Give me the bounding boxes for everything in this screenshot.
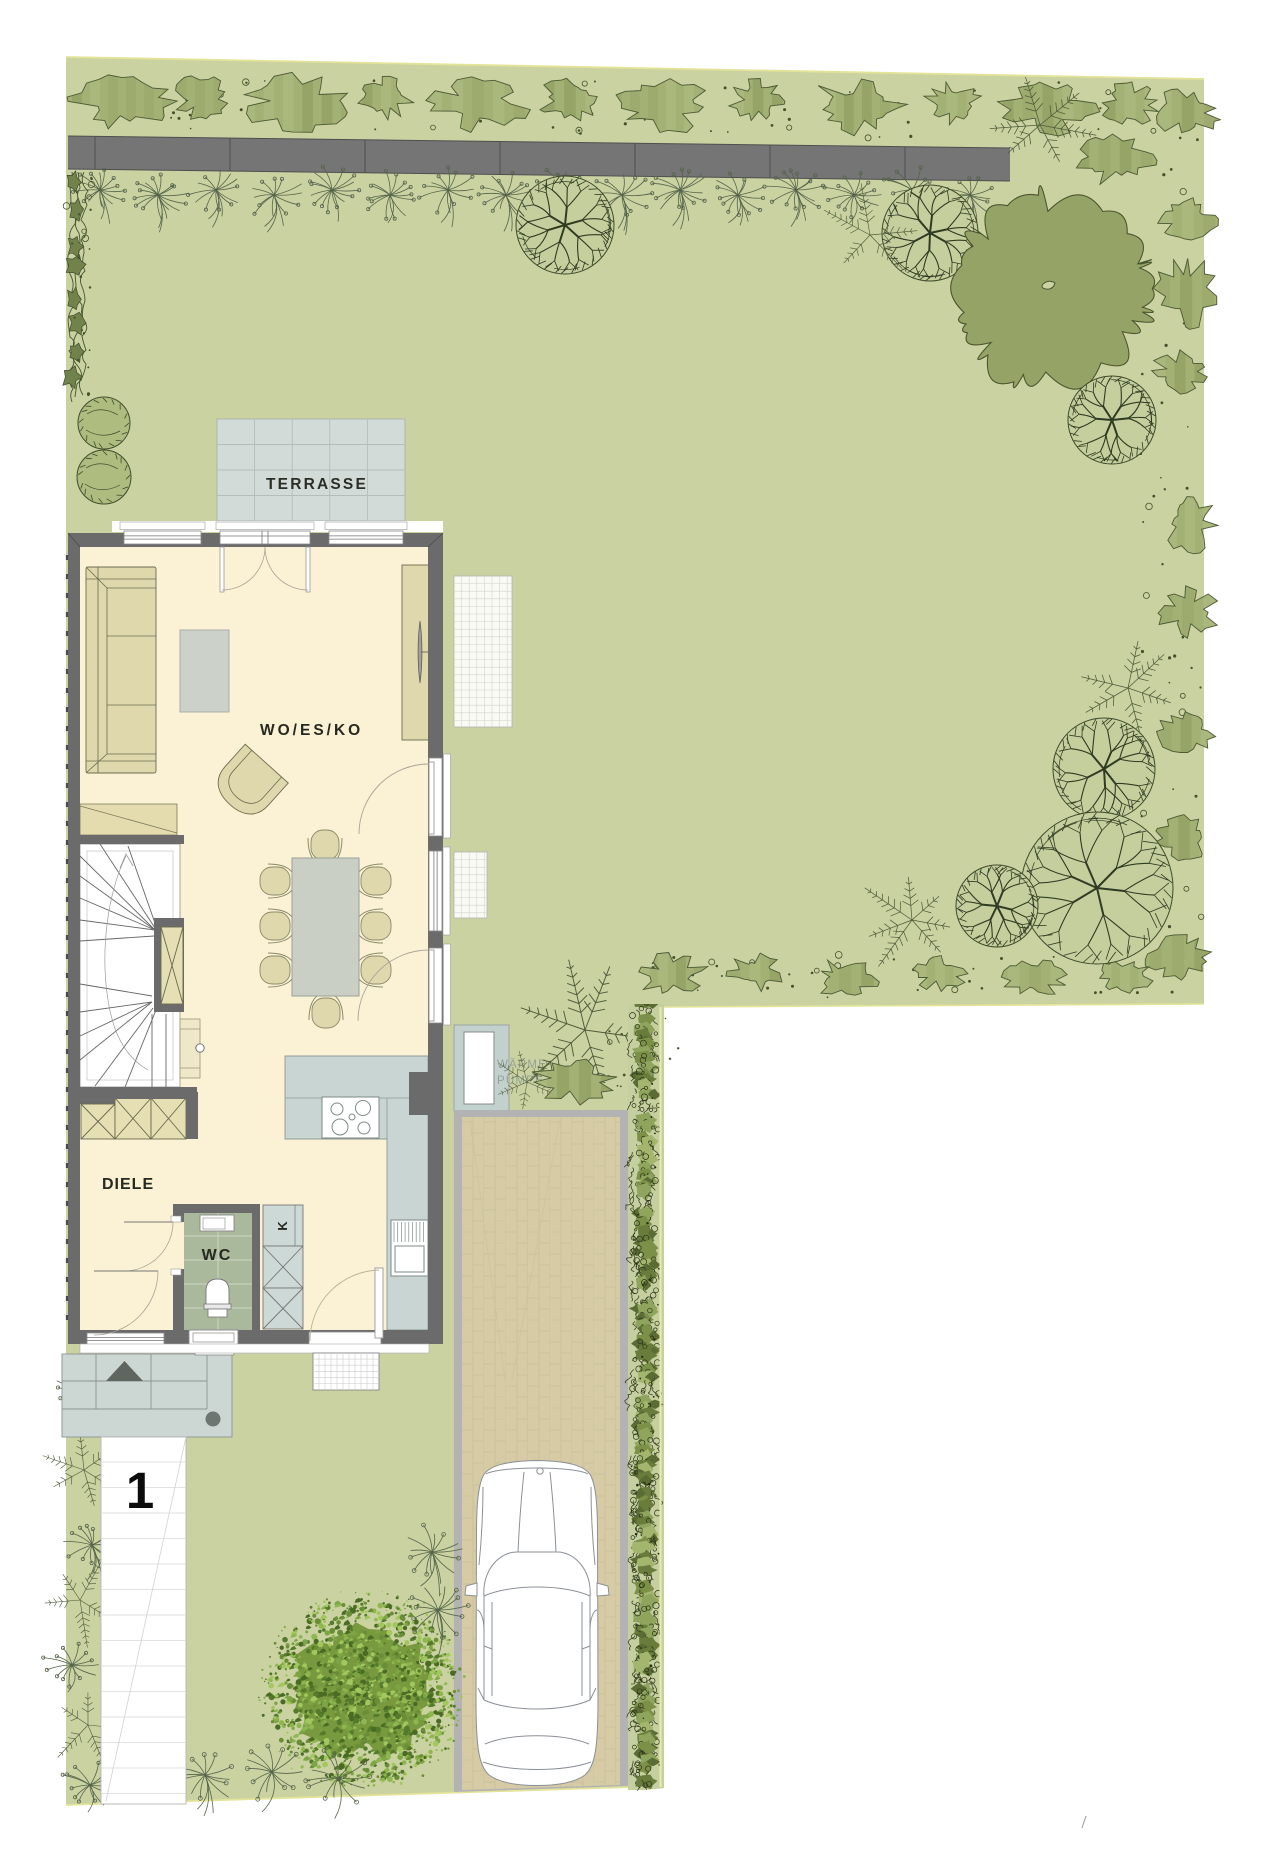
svg-text:TERRASSE: TERRASSE [266,476,368,493]
svg-text:1: 1 [126,1462,154,1519]
svg-text:WO/ES/KO: WO/ES/KO [260,722,363,739]
svg-text:DIELE: DIELE [102,1176,154,1193]
svg-text:WC: WC [202,1247,233,1264]
svg-text:K: K [275,1221,290,1231]
